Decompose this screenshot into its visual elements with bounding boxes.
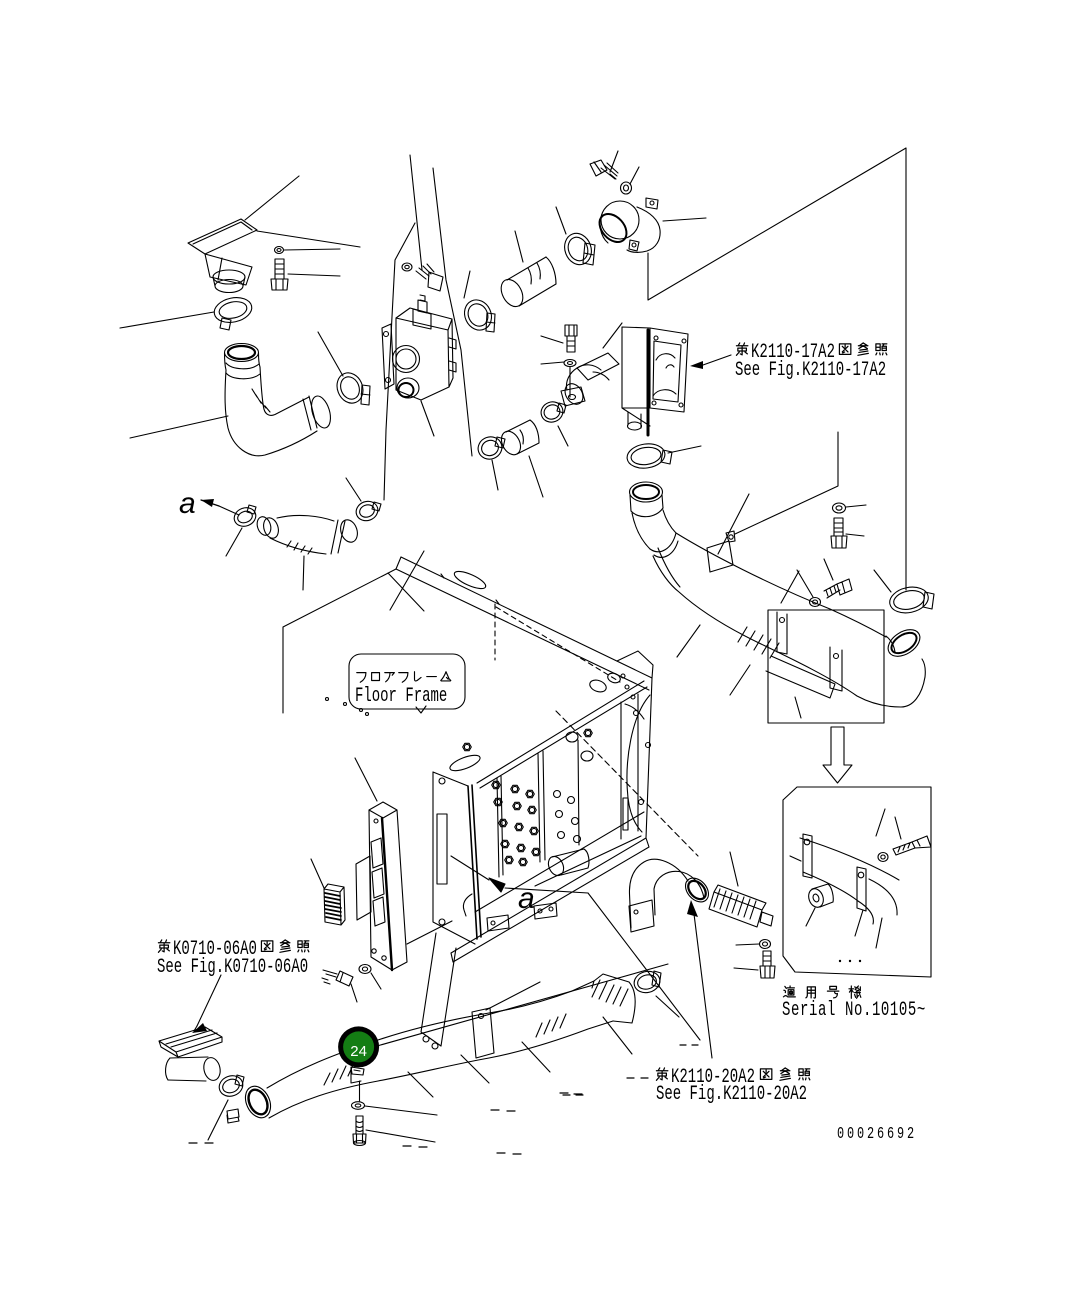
svg-text:See Fig.K2110-20A2: See Fig.K2110-20A2 <box>656 1084 807 1106</box>
svg-text:Serial No.10105~: Serial No.10105~ <box>782 1000 926 1022</box>
svg-text:24: 24 <box>350 1043 367 1060</box>
svg-text:Floor Frame: Floor Frame <box>355 686 447 708</box>
svg-text:a: a <box>518 882 535 915</box>
svg-text:See Fig.K2110-17A2: See Fig.K2110-17A2 <box>735 360 886 382</box>
svg-text:00026692: 00026692 <box>837 1125 917 1144</box>
svg-text:a: a <box>179 487 196 520</box>
svg-text:See Fig.K0710-06A0: See Fig.K0710-06A0 <box>157 957 308 979</box>
